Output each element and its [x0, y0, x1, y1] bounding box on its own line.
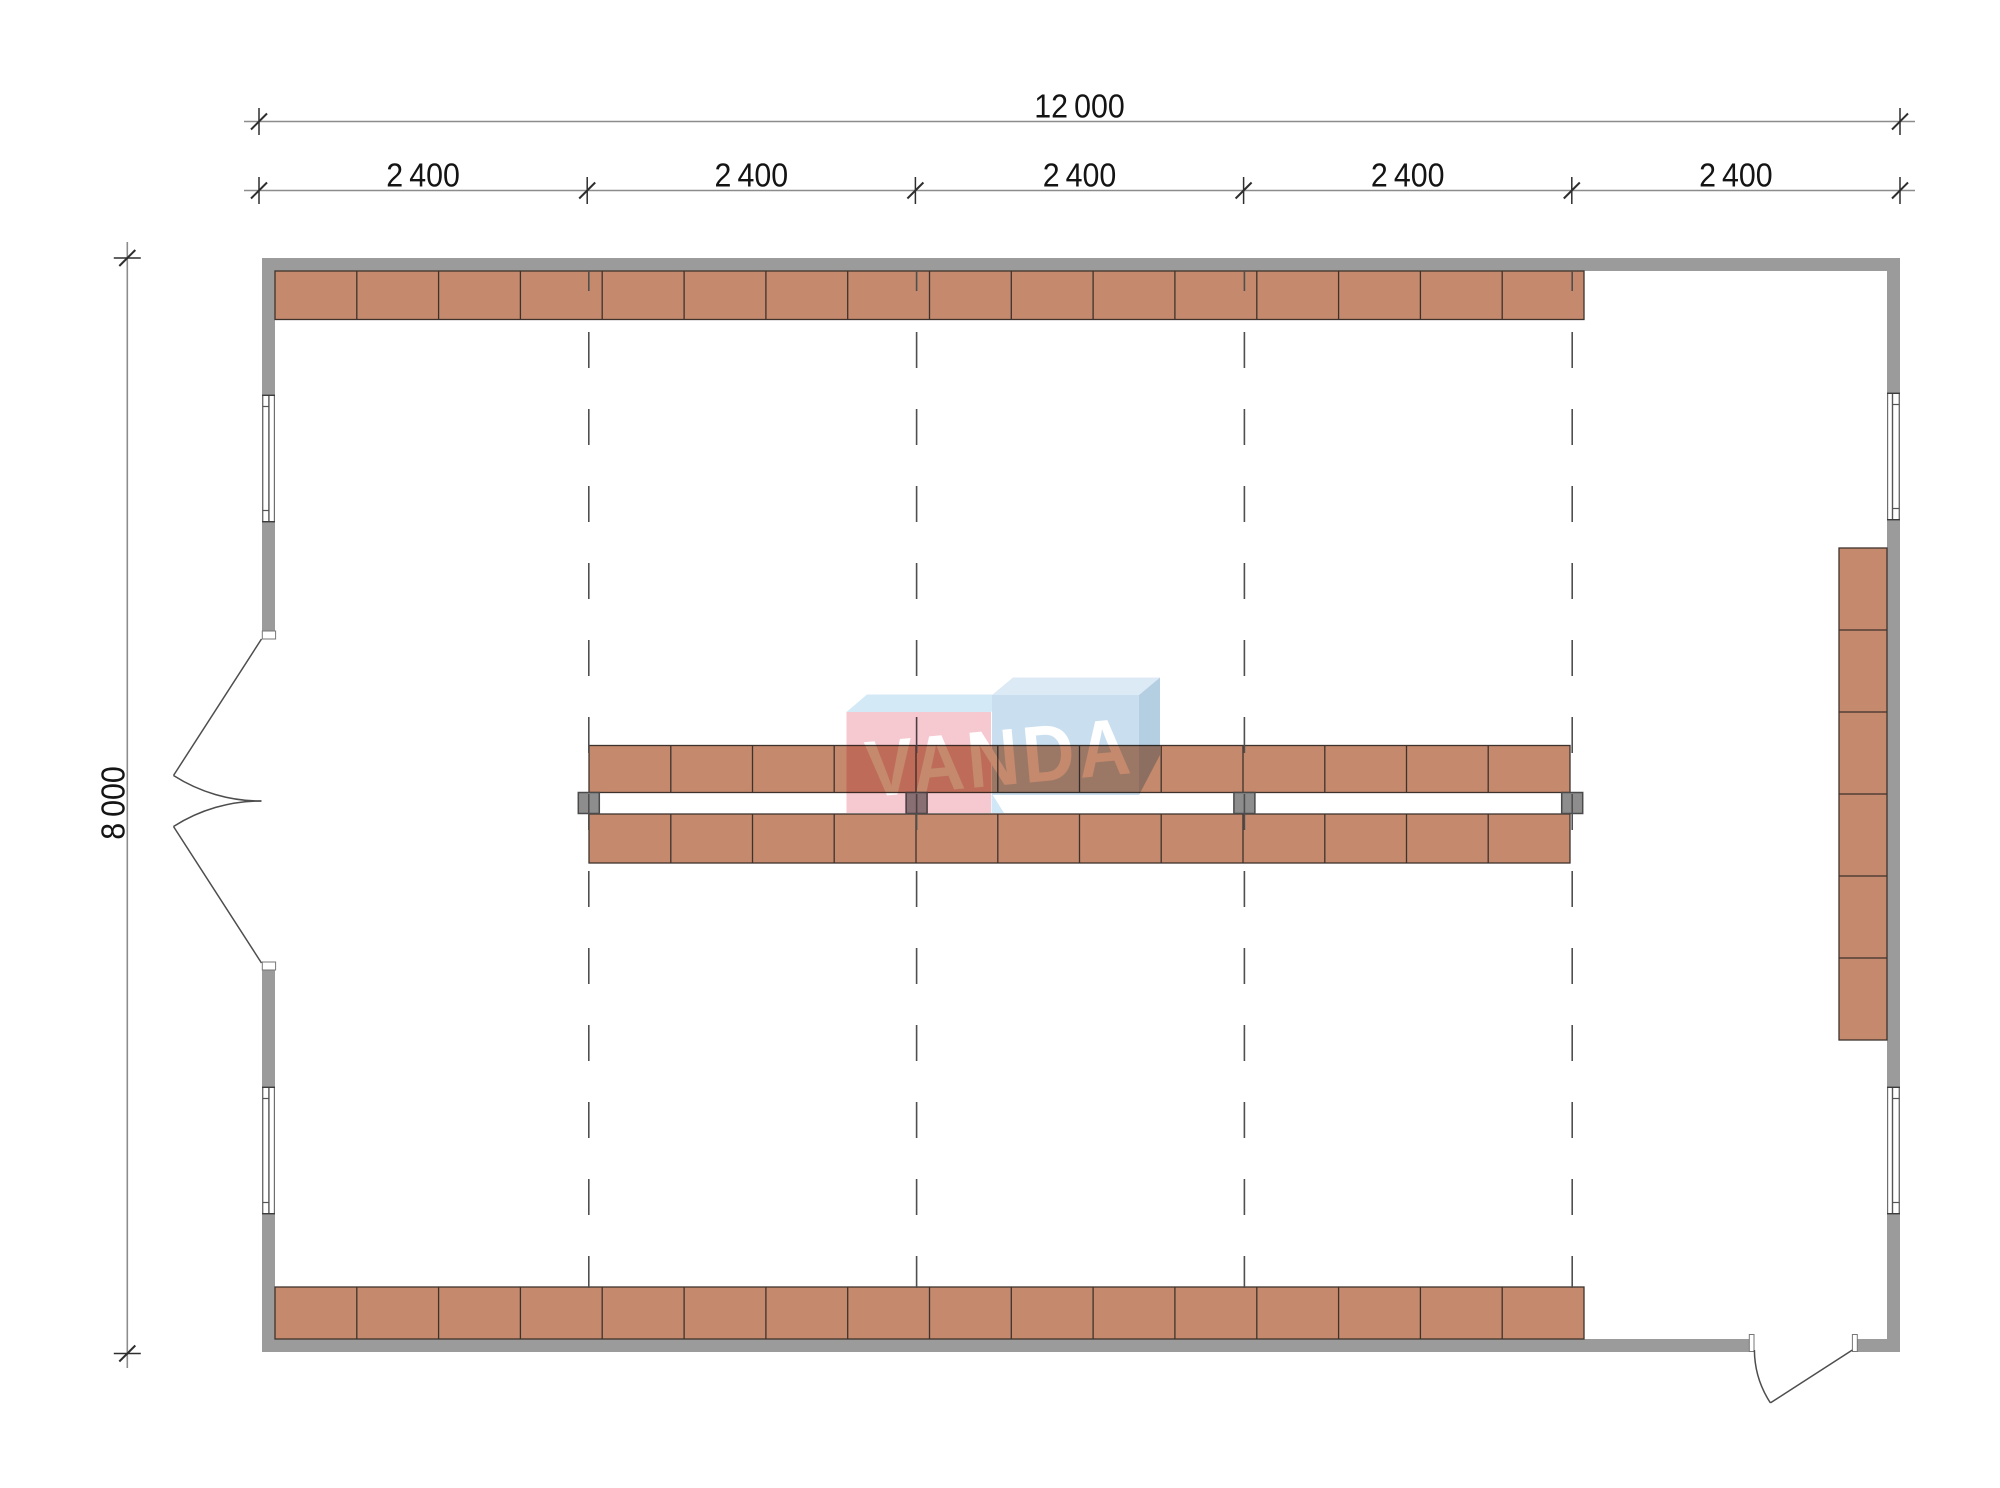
svg-text:2 400: 2 400: [1043, 156, 1117, 193]
svg-text:12 000: 12 000: [1034, 87, 1124, 124]
svg-text:2 400: 2 400: [386, 156, 460, 193]
svg-text:2 400: 2 400: [1371, 156, 1445, 193]
svg-text:2 400: 2 400: [715, 156, 789, 193]
svg-text:2 400: 2 400: [1699, 156, 1773, 193]
svg-text:8 000: 8 000: [94, 766, 131, 840]
